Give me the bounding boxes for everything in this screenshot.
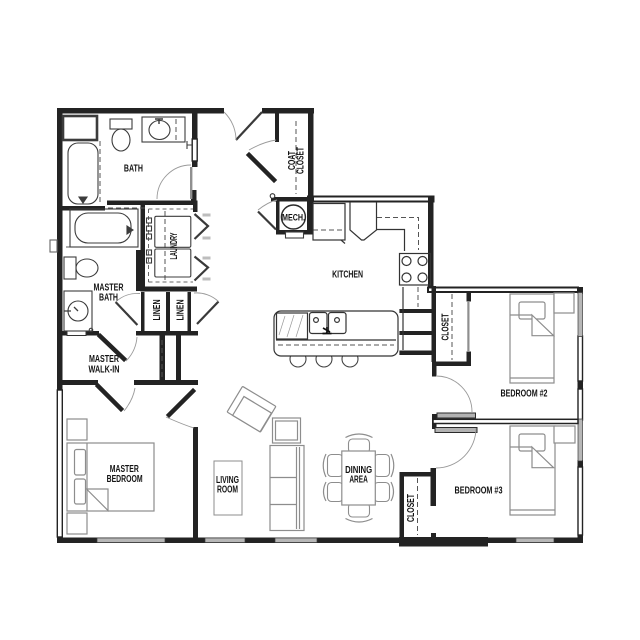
- svg-text:LINEN: LINEN: [176, 299, 187, 320]
- svg-text:BEDROOM #2: BEDROOM #2: [501, 389, 548, 400]
- svg-text:KITCHEN: KITCHEN: [332, 270, 363, 281]
- svg-text:CLOSET: CLOSET: [296, 147, 307, 174]
- svg-text:CLOSET: CLOSET: [406, 494, 417, 522]
- svg-text:BATH: BATH: [99, 293, 118, 304]
- svg-text:WALK-IN: WALK-IN: [89, 365, 120, 376]
- svg-text:MASTER: MASTER: [89, 354, 119, 365]
- svg-text:MECH.: MECH.: [282, 212, 305, 223]
- svg-text:BATH: BATH: [124, 164, 143, 175]
- svg-text:BEDROOM: BEDROOM: [107, 474, 143, 485]
- svg-text:ROOM: ROOM: [217, 485, 238, 496]
- svg-text:BEDROOM #3: BEDROOM #3: [455, 486, 503, 497]
- svg-text:LINEN: LINEN: [152, 299, 163, 320]
- svg-text:LAUNDRY: LAUNDRY: [169, 232, 180, 259]
- svg-text:CLOSET: CLOSET: [441, 313, 452, 340]
- svg-text:AREA: AREA: [349, 475, 368, 486]
